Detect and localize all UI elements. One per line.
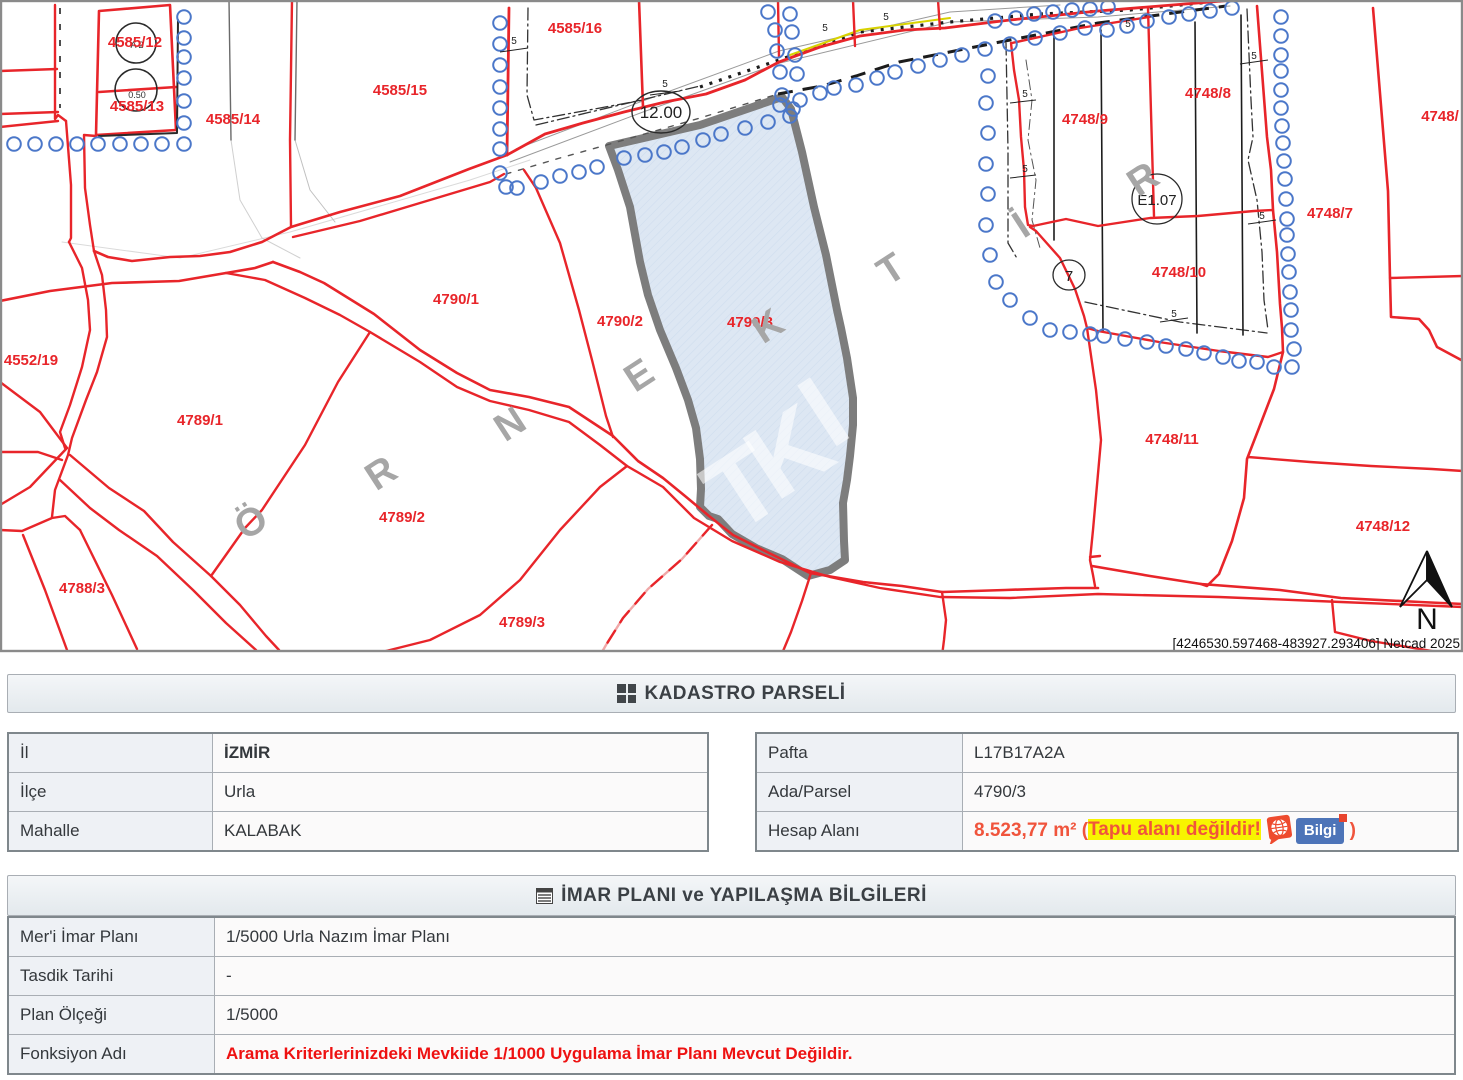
svg-text:4585/14: 4585/14 (206, 111, 261, 128)
svg-text:5: 5 (1125, 19, 1131, 30)
svg-text:4585/12: 4585/12 (108, 34, 162, 51)
svg-text:4748/8: 4748/8 (1185, 85, 1231, 102)
svg-text:4788/3: 4788/3 (59, 580, 105, 597)
svg-text:7: 7 (1065, 268, 1073, 285)
svg-text:4552/19: 4552/19 (4, 352, 58, 369)
svg-text:4748/11: 4748/11 (1145, 431, 1198, 448)
svg-text:[4246530.597468-483927.293406]: [4246530.597468-483927.293406] Netcad 20… (1172, 636, 1460, 651)
svg-text:5: 5 (1171, 309, 1177, 320)
svg-text:4748/: 4748/ (1421, 108, 1459, 125)
svg-text:4748/10: 4748/10 (1152, 264, 1206, 281)
svg-text:4748/9: 4748/9 (1062, 111, 1108, 128)
svg-text:4789/1: 4789/1 (177, 412, 223, 429)
svg-text:12.00: 12.00 (640, 103, 683, 122)
svg-text:4585/16: 4585/16 (548, 20, 602, 37)
svg-text:4585/15: 4585/15 (373, 82, 427, 99)
svg-text:4585/13: 4585/13 (110, 98, 164, 115)
svg-text:5: 5 (822, 23, 828, 34)
svg-text:5: 5 (1022, 89, 1028, 100)
svg-text:4790/2: 4790/2 (597, 313, 643, 330)
svg-text:5: 5 (1259, 211, 1265, 222)
svg-text:4748/12: 4748/12 (1356, 518, 1410, 535)
svg-text:5: 5 (662, 79, 668, 90)
svg-text:4748/7: 4748/7 (1307, 205, 1353, 222)
svg-text:4789/2: 4789/2 (379, 509, 425, 526)
svg-text:N: N (1416, 603, 1438, 636)
svg-text:5: 5 (511, 36, 517, 47)
svg-text:5: 5 (883, 12, 889, 23)
svg-text:5: 5 (1022, 164, 1028, 175)
svg-text:5: 5 (1251, 51, 1257, 62)
svg-text:4790/1: 4790/1 (433, 291, 479, 308)
